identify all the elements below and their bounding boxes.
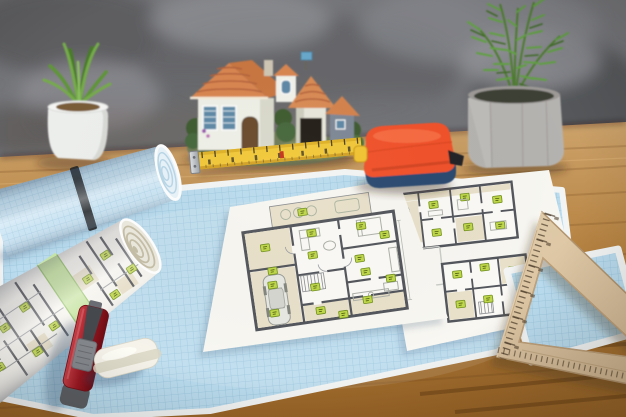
scene-photo (0, 0, 626, 417)
photo-architect-desk (0, 0, 626, 417)
vignette-overlay (0, 0, 626, 417)
